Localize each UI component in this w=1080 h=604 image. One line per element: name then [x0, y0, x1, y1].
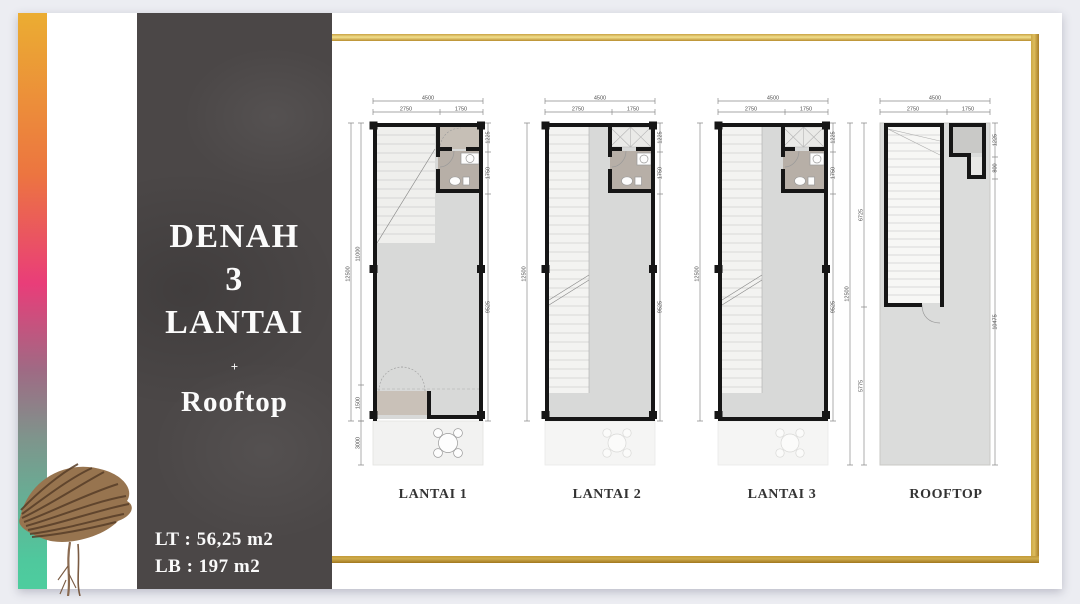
dim-top-left: 2750 [745, 107, 757, 113]
dim-right-mid: 1750 [658, 167, 664, 179]
dim-top-total: 4500 [422, 96, 434, 102]
dim-right-mid: 1750 [486, 167, 492, 179]
building-area-text: LB : 197 m2 [155, 553, 273, 580]
dim-right-top: 1225 [831, 131, 837, 143]
toilet-icon [622, 177, 633, 185]
title-line-1: DENAH [137, 215, 332, 258]
toilet-icon [450, 177, 461, 185]
area-info: LT : 56,25 m2 LB : 197 m2 [155, 526, 273, 580]
title-line-2: 3 [137, 258, 332, 301]
closet-area [438, 127, 479, 149]
dim-right-main: 9525 [658, 301, 664, 313]
land-area-text: LT : 56,25 m2 [155, 526, 273, 553]
title-divider: + [137, 360, 332, 373]
dim-left-lower: 1500 [356, 397, 362, 409]
dim-left-total: 12500 [845, 286, 851, 301]
title-panel: DENAH 3 LANTAI + Rooftop LT : 56,25 m2 L… [137, 13, 332, 589]
dim-top-left: 2750 [907, 107, 919, 113]
dim-right-top: 1225 [993, 134, 999, 146]
dim-top-right: 1750 [962, 107, 974, 113]
dim-left-terrace: 3000 [356, 437, 362, 449]
dim-right-main: 9525 [486, 301, 492, 313]
dim-top-right: 1750 [800, 107, 812, 113]
dim-left-total: 12500 [695, 266, 701, 281]
floor-plan-lantai-1: 4500 2750 1750 12500 11000 1500 3000 122… [341, 93, 491, 473]
leaf-stem [68, 542, 70, 596]
dim-top-left: 2750 [400, 107, 412, 113]
dim-top-total: 4500 [767, 96, 779, 102]
plan-label-lantai-2: LANTAI 2 [547, 487, 667, 503]
dim-left-lower: 5775 [859, 380, 865, 392]
dried-leaf-decoration [8, 446, 143, 596]
skylight-void [783, 127, 824, 147]
title-subtitle: Rooftop [137, 385, 332, 419]
title-line-3: LANTAI [137, 301, 332, 344]
dim-top-left: 2750 [572, 107, 584, 113]
bathroom [783, 151, 824, 189]
dim-left-total: 12500 [346, 266, 352, 281]
stairs-icon [722, 127, 762, 393]
dim-top-total: 4500 [929, 96, 941, 102]
dim-right-top: 1225 [658, 131, 664, 143]
dim-left-upper: 11000 [356, 247, 362, 262]
floor-plan-lantai-3: 4500 2750 1750 12500 1225 1750 9525 [686, 93, 836, 473]
plan-label-lantai-1: LANTAI 1 [373, 487, 493, 503]
terrace-ghost [545, 421, 655, 465]
dim-top-right: 1750 [627, 107, 639, 113]
toilet-icon [795, 177, 806, 185]
dim-right-main: 10475 [993, 314, 999, 329]
dim-right-main: 9525 [831, 301, 837, 313]
floor-plan-rooftop: 4500 2750 1750 12500 6725 5775 1225 800 … [840, 93, 1005, 473]
dim-right-mid: 800 [993, 163, 999, 172]
skylight-void [610, 127, 651, 147]
gold-frame-bottom [332, 556, 1039, 563]
page-title: DENAH 3 LANTAI + Rooftop [137, 215, 332, 419]
bathroom [438, 127, 479, 189]
gold-frame-top [332, 34, 1039, 41]
dim-right-top: 1225 [486, 131, 492, 143]
dim-top-total: 4500 [594, 96, 606, 102]
dim-right-mid: 1750 [831, 167, 837, 179]
presentation-slide: { "slide": { "panel": { "title_line1": "… [0, 0, 1080, 604]
plan-label-rooftop: ROOFTOP [886, 487, 1006, 503]
dim-left-total: 12500 [522, 266, 528, 281]
dim-left-stair: 6725 [859, 209, 865, 221]
gold-frame-right [1031, 34, 1039, 563]
dim-top-right: 1750 [455, 107, 467, 113]
stairs-icon [549, 127, 589, 393]
bathroom [610, 151, 651, 189]
plan-label-lantai-3: LANTAI 3 [722, 487, 842, 503]
stairs-icon [377, 127, 435, 243]
terrace [373, 421, 483, 465]
floor-plan-lantai-2: 4500 2750 1750 12500 1225 1750 9525 [513, 93, 663, 473]
terrace-ghost [718, 421, 828, 465]
stairs-icon [888, 127, 940, 323]
